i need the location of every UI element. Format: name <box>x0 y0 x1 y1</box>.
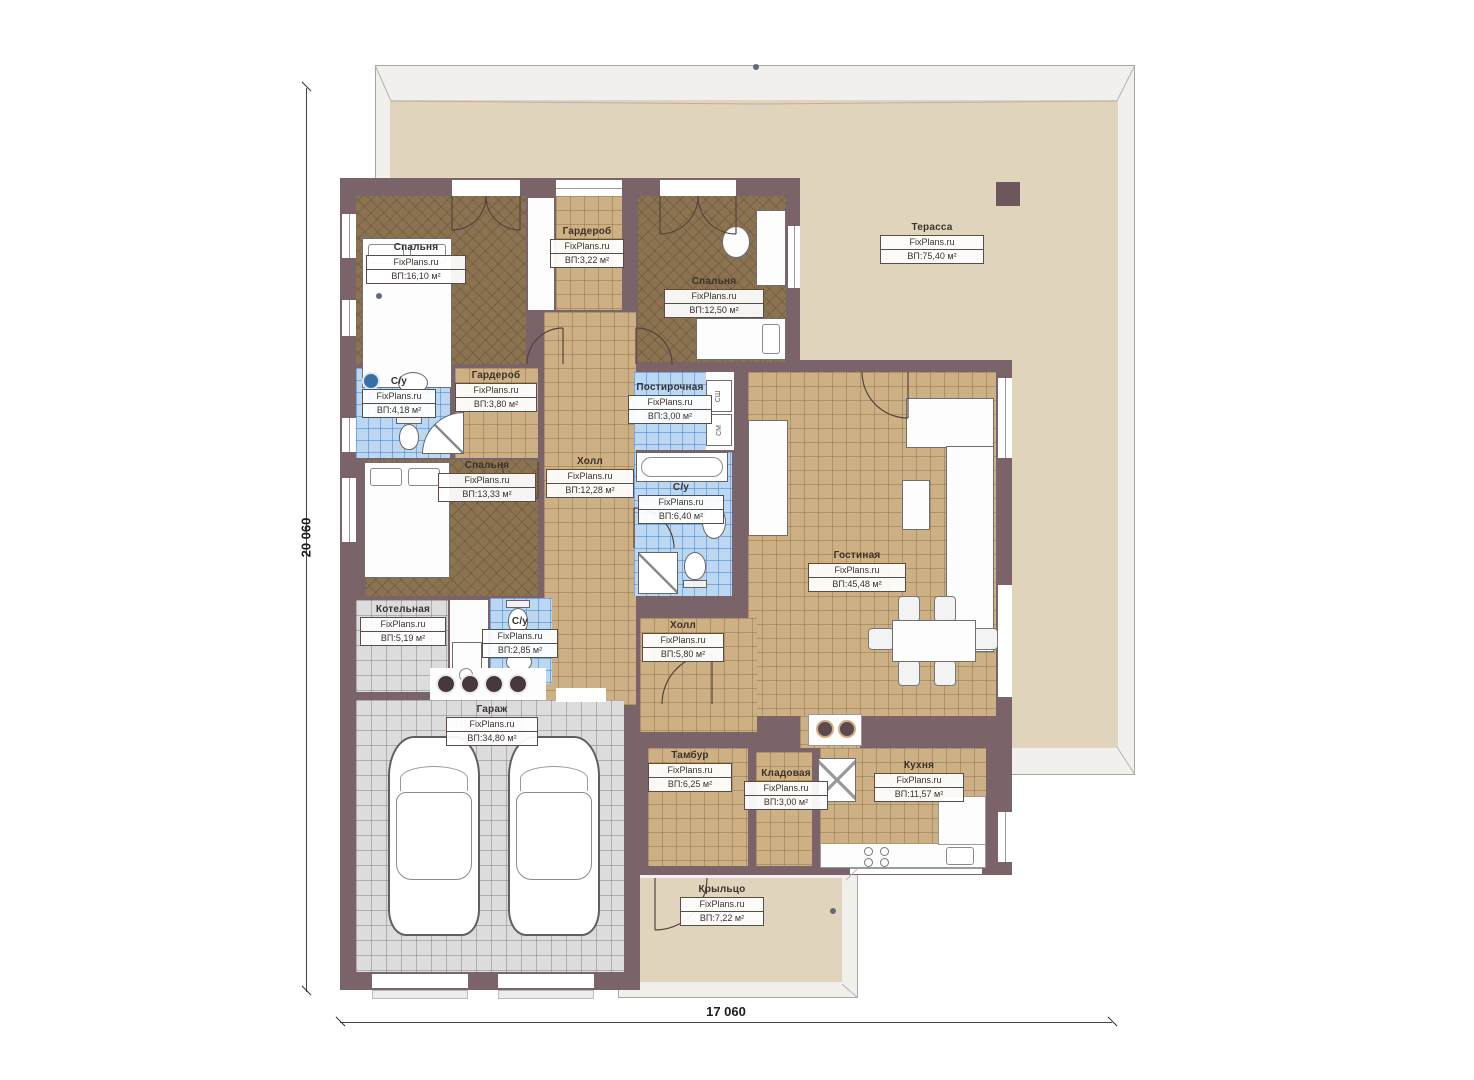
bedroom-3-window <box>342 478 356 542</box>
hob-burner <box>838 720 856 738</box>
room-area: ВП:75,40 м² <box>881 250 983 263</box>
room-name: Гардероб <box>455 370 537 382</box>
watermark: FixPlans.ru <box>447 718 537 732</box>
terrace-column <box>996 182 1020 206</box>
room-area: ВП:45,48 м² <box>809 578 905 591</box>
watermark: FixPlans.ru <box>681 898 763 912</box>
watermark: FixPlans.ru <box>875 774 963 788</box>
room-label-bedroom-2: Спальня FixPlans.ruВП:12,50 м² <box>664 276 764 318</box>
room-area: ВП:3,22 м² <box>551 254 623 267</box>
room-area: ВП:3,00 м² <box>629 410 711 423</box>
stove-burner <box>880 858 889 867</box>
dining-chair <box>934 596 956 622</box>
garage-door-opening-2 <box>498 974 594 988</box>
room-label-boiler: Котельная FixPlans.ruВП:5,19 м² <box>360 604 446 646</box>
watermark: FixPlans.ru <box>361 618 445 632</box>
dining-chair <box>934 660 956 686</box>
kitchen-side-window <box>998 812 1012 862</box>
coffee-table <box>902 480 930 530</box>
room-name: Спальня <box>438 460 536 472</box>
room-label-storage: Кладовая FixPlans.ruВП:3,00 м² <box>744 768 828 810</box>
watermark: FixPlans.ru <box>456 384 536 398</box>
living-terrace-door-opening <box>998 585 1012 697</box>
room-name: Гостиная <box>808 550 906 562</box>
bedroom-1-window <box>342 214 356 258</box>
room-name: Холл <box>546 456 634 468</box>
watermark: FixPlans.ru <box>745 782 827 796</box>
room-name: Спальня <box>366 242 466 254</box>
tv-cabinet <box>748 420 788 536</box>
room-label-kitchen: Кухня FixPlans.ruВП:11,57 м² <box>874 760 964 802</box>
room-label-terrace: Терасса FixPlans.ruВП:75,40 м² <box>880 222 984 264</box>
watermark: FixPlans.ru <box>629 396 711 410</box>
manifold-valve <box>508 674 528 694</box>
watermark: FixPlans.ru <box>665 290 763 304</box>
stove-burner <box>864 847 873 856</box>
room-label-hall-1: Холл FixPlans.ruВП:12,28 м² <box>546 456 634 498</box>
watermark: FixPlans.ru <box>483 630 557 644</box>
pillow <box>408 468 440 486</box>
garage-apron <box>372 990 468 999</box>
watermark: FixPlans.ru <box>547 470 633 484</box>
room-area: ВП:7,22 м² <box>681 912 763 925</box>
room-area: ВП:12,28 м² <box>547 484 633 497</box>
room-area: ВП:4,18 м² <box>363 404 435 417</box>
room-label-bathroom-3: С/у FixPlans.ruВП:2,85 м² <box>482 616 558 658</box>
room-label-wardrobe-2: Гардероб FixPlans.ruВП:3,80 м² <box>455 370 537 412</box>
pillow <box>762 324 780 354</box>
dining-chair <box>868 628 894 650</box>
room-area: ВП:34,80 м² <box>447 732 537 745</box>
watermark: FixPlans.ru <box>363 390 435 404</box>
room-area: ВП:5,19 м² <box>361 632 445 645</box>
pillow <box>370 468 402 486</box>
garage-apron <box>498 990 594 999</box>
toilet <box>399 424 419 450</box>
room-area: ВП:13,33 м² <box>439 488 535 501</box>
toilet-tank <box>506 600 530 608</box>
garage-door-opening-1 <box>372 974 468 988</box>
room-name: С/у <box>638 482 724 494</box>
watermark: FixPlans.ru <box>643 634 723 648</box>
bathtub <box>636 452 728 482</box>
manifold-valve <box>484 674 504 694</box>
stove-burner <box>880 847 889 856</box>
bedroom-2-window <box>788 226 800 288</box>
room-name: Тамбур <box>648 750 732 762</box>
room-name: Спальня <box>664 276 764 288</box>
room-name: Кухня <box>874 760 964 772</box>
room-area: ВП:3,00 м² <box>745 796 827 809</box>
bathroom-1-window <box>342 418 356 452</box>
room-label-laundry: Постирочная FixPlans.ruВП:3,00 м² <box>628 382 712 424</box>
watermark: FixPlans.ru <box>367 256 465 270</box>
room-area: ВП:5,80 м² <box>643 648 723 661</box>
dining-table <box>892 620 976 662</box>
manifold-valve <box>436 674 456 694</box>
watermark: FixPlans.ru <box>551 240 623 254</box>
hall-garage-door-opening <box>556 688 606 702</box>
watermark: FixPlans.ru <box>439 474 535 488</box>
room-area: ВП:11,57 м² <box>875 788 963 801</box>
room-label-bedroom-3: Спальня FixPlans.ruВП:13,33 м² <box>438 460 536 502</box>
floor-plan: СШ СМ <box>0 0 1474 1080</box>
room-name: Гардероб <box>550 226 624 238</box>
toilet-tank <box>683 580 707 588</box>
watermark: FixPlans.ru <box>649 764 731 778</box>
room-name: С/у <box>362 376 436 388</box>
dimension-value-left: 20 060 <box>299 498 314 578</box>
kitchen-counter-right <box>938 796 986 845</box>
room-label-wardrobe-1: Гардероб FixPlans.ruВП:3,22 м² <box>550 226 624 268</box>
watermark: FixPlans.ru <box>809 564 905 578</box>
room-area: ВП:6,40 м² <box>639 510 723 523</box>
room-name: Постирочная <box>628 382 712 394</box>
room-area: ВП:12,50 м² <box>665 304 763 317</box>
room-label-porch: Крыльцо FixPlans.ruВП:7,22 м² <box>680 884 764 926</box>
wardrobe-1-window <box>556 180 622 196</box>
hob-burner <box>816 720 834 738</box>
room-area: ВП:6,25 м² <box>649 778 731 791</box>
room-label-living: Гостиная FixPlans.ruВП:45,48 м² <box>808 550 906 592</box>
kitchen-sink <box>946 847 974 865</box>
desk-bedroom-2 <box>756 210 786 286</box>
room-name: Котельная <box>360 604 446 616</box>
car-2 <box>508 736 600 936</box>
room-label-garage: Гараж FixPlans.ruВП:34,80 м² <box>446 704 538 746</box>
dimension-line-bottom <box>340 1022 1112 1023</box>
living-window <box>998 378 1012 458</box>
watermark: FixPlans.ru <box>639 496 723 510</box>
sofa-top-section <box>906 398 994 448</box>
room-name: Терасса <box>880 222 984 234</box>
watermark: FixPlans.ru <box>881 236 983 250</box>
dryer-label: СШ <box>715 390 722 401</box>
bedroom-1-terrace-door-opening <box>452 180 520 196</box>
bedroom-1-window-2 <box>342 300 356 336</box>
room-name: С/у <box>482 616 558 628</box>
room-label-bedroom-1: Спальня FixPlans.ruВП:16,10 м² <box>366 242 466 284</box>
room-area: ВП:3,80 м² <box>456 398 536 411</box>
room-label-bathroom-2: С/у FixPlans.ruВП:6,40 м² <box>638 482 724 524</box>
dimension-value-bottom: 17 060 <box>656 1004 796 1019</box>
bedroom-2-terrace-door-opening <box>660 180 736 196</box>
room-name: Гараж <box>446 704 538 716</box>
washer-label: СМ <box>716 425 723 436</box>
room-name: Холл <box>642 620 724 632</box>
room-area: ВП:2,85 м² <box>483 644 557 657</box>
dining-chair <box>898 596 920 622</box>
dining-chair <box>898 660 920 686</box>
stove-burner <box>864 858 873 867</box>
desk-chair <box>722 226 750 258</box>
car-1 <box>388 736 480 936</box>
room-name: Кладовая <box>744 768 828 780</box>
room-label-tambour: Тамбур FixPlans.ruВП:6,25 м² <box>648 750 732 792</box>
manifold-valve <box>460 674 480 694</box>
room-label-bathroom-1: С/у FixPlans.ruВП:4,18 м² <box>362 376 436 418</box>
room-label-hall-2: Холл FixPlans.ruВП:5,80 м² <box>642 620 724 662</box>
room-name: Крыльцо <box>680 884 764 896</box>
room-area: ВП:16,10 м² <box>367 270 465 283</box>
shower <box>638 552 678 594</box>
toilet <box>684 552 706 580</box>
